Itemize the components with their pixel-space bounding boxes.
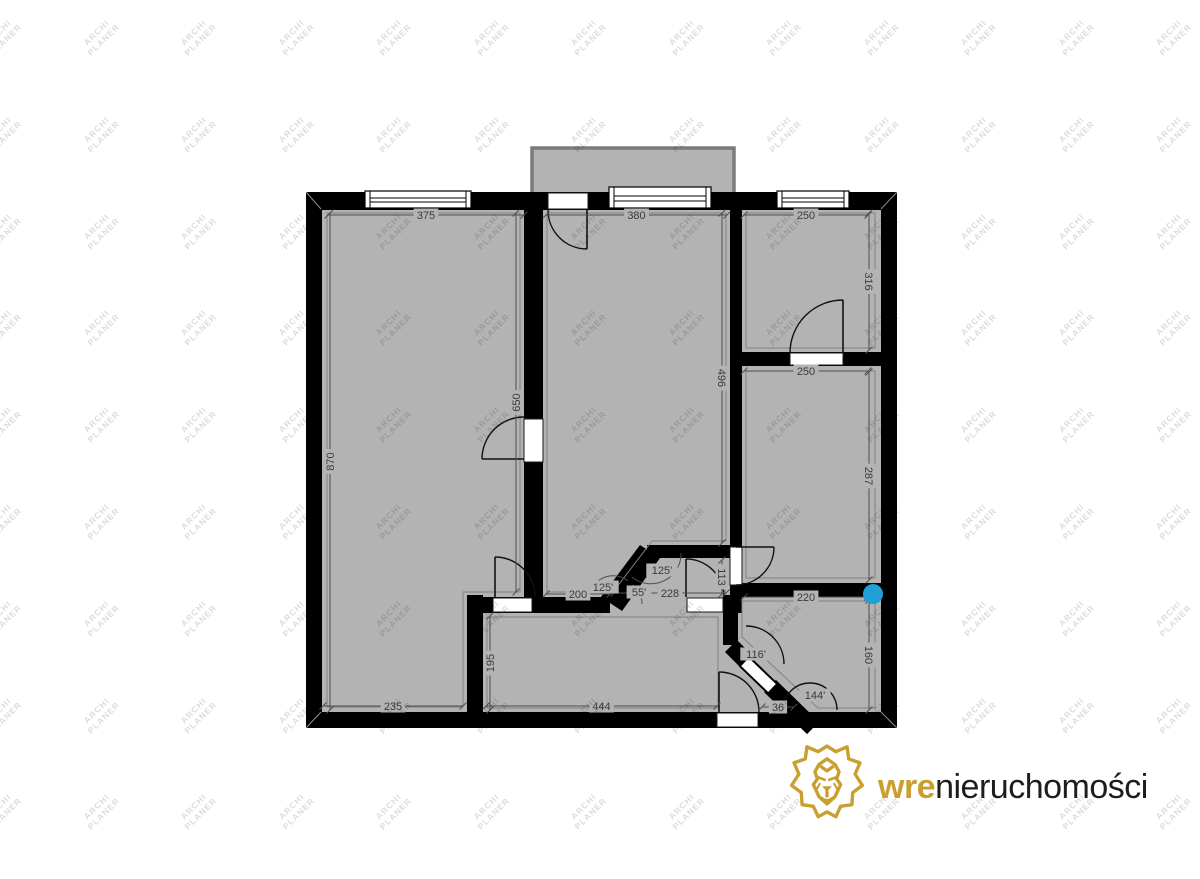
wall-bottomright-west [723,595,738,645]
opening-left-room-door [524,419,543,462]
opening-balcony-door [548,193,588,209]
dimension-label: 160 [862,646,874,664]
dimension-label: 125' [652,565,672,577]
opening-midright-door [730,547,742,585]
logo-text-rest: nieruchomości [935,768,1148,806]
dimension-label: 380 [627,210,645,222]
dimension-label: 250 [797,210,815,222]
dimension-label: 250 [797,366,815,378]
opening-topright-door [790,353,843,365]
brand-logo: wrenieruchomości [786,742,1148,832]
opening-hall-right-door [687,598,723,612]
dimension-label: 316 [862,272,874,290]
dimension-label: 235 [384,701,402,713]
lion-icon [786,742,868,832]
dimension-label: 220 [797,592,815,604]
dimension-label: 287 [862,467,874,485]
opening-hall-left-door [493,598,532,612]
dimension-label: 195 [485,654,497,672]
dimension-label: 200 [569,589,587,601]
dimension-label: 125' [593,582,613,594]
dimension-label: 116' [746,649,766,661]
dimension-label: 496 [715,369,727,387]
logo-text: wrenieruchomości [878,768,1148,807]
dimension-label: 113 [715,568,727,586]
window-left-room [365,191,471,208]
dimension-label: 55' [632,587,646,599]
dimension-label: 444 [592,701,610,713]
dimension-label: 144' [805,690,825,702]
wall-hall-west [467,595,483,728]
window-middle-room [609,187,711,208]
location-marker [863,584,883,604]
dimension-label: 36 [772,702,784,714]
logo-text-bold: wre [878,768,935,806]
opening-entrance-door [717,713,758,727]
flat-floor [320,208,881,714]
wall-right [881,192,897,728]
wall-strip-north [647,545,730,558]
dimension-label: 650 [511,393,523,411]
dimension-label: 375 [417,210,435,222]
dimension-label: 228 [661,588,679,600]
wall-left [306,192,322,728]
window-topright-room [777,191,849,208]
dimension-label: 870 [325,452,337,470]
wall-left-middle [524,192,543,613]
